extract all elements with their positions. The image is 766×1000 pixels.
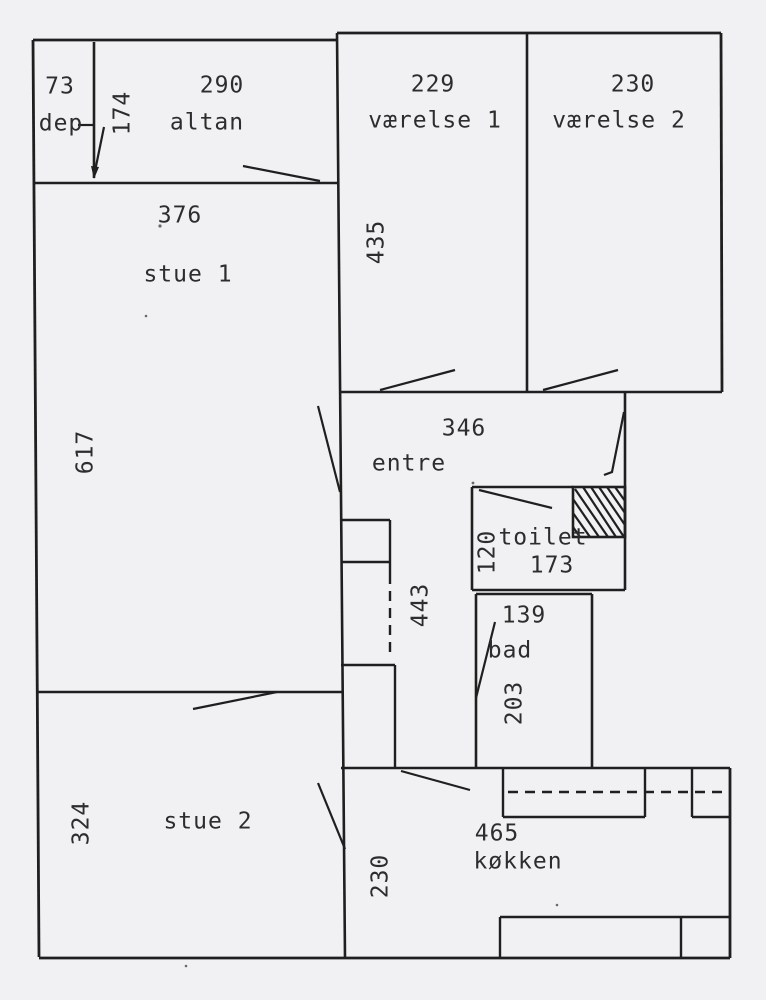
dim-entre-width: 346 [442,418,487,441]
room-label-koekken: køkken [473,851,562,874]
dim-stue2-depth: 324 [71,801,94,846]
door-vaerelse2 [543,370,618,390]
floor-plan-page: 73 dep 174 290 altan 229 værelse 1 435 2… [0,0,766,1000]
dim-toilet-width: 120 [477,530,500,575]
dashed-lines [390,574,727,792]
scan-specks-segment [185,965,188,968]
room-label-bad: bad [488,640,533,663]
room-label-stue2: stue 2 [163,811,252,834]
wall-main-vertical [337,33,345,958]
dim-stue1-width: 376 [158,205,203,228]
shaft-hatched-segment [607,487,625,513]
door-entre-east [604,412,624,475]
dim-dep-depth: 174 [112,91,135,136]
dim-toilet-length: 173 [530,555,575,578]
dim-altan-width: 290 [200,75,245,98]
room-label-dep: dep [39,113,84,136]
scan-specks-segment [472,482,475,485]
room-label-vaerelse2: værelse 2 [552,110,686,133]
wall-left [33,40,39,957]
dim-bad-width: 139 [502,605,547,628]
dim-vaerelse1-depth: 435 [366,220,389,265]
dim-bad-depth: 203 [504,681,527,726]
door-altan [243,166,320,181]
dim-dep-width: 73 [45,76,75,99]
wall-right-upper [721,33,722,392]
room-label-vaerelse1: værelse 1 [368,110,502,133]
floor-plan-drawing [0,0,766,1000]
door-stue2-hall [318,783,345,849]
dim-hall-depth: 443 [410,583,433,628]
door-vaerelse1 [380,370,455,390]
room-label-toilet: toilet [498,527,587,550]
dim-stue1-depth: 617 [75,430,98,475]
hall-closets [341,520,395,768]
door-toilet [479,490,552,508]
room-label-stue1: stue 1 [143,264,232,287]
door-stue1 [318,406,340,492]
door-stue2 [193,692,277,709]
scan-specks-segment [145,315,148,318]
door-kitchen [401,771,470,790]
dim-vaerelse1-width: 229 [411,74,456,97]
room-label-entre: entre [372,453,446,476]
dim-koekken-width: 465 [475,823,520,846]
dim-vaerelse2-width: 230 [611,74,656,97]
scan-specks-segment [556,904,559,907]
room-label-altan: altan [170,112,244,135]
dim-hall-width: 230 [370,854,393,899]
